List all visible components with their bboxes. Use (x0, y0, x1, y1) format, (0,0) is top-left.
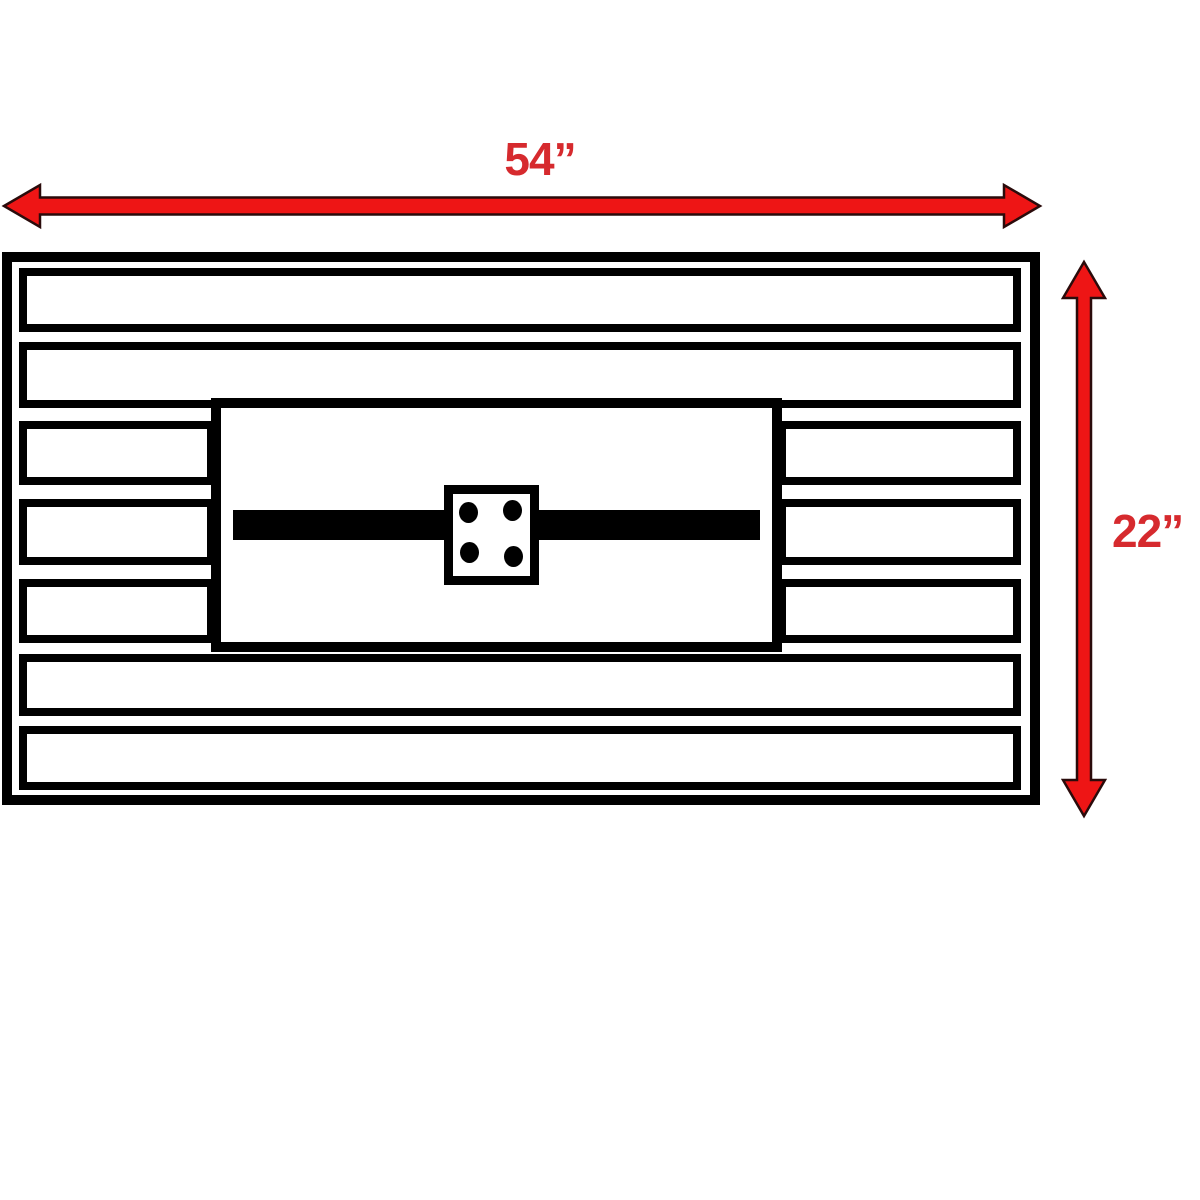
burner-hole (504, 546, 523, 567)
burner-plate (444, 485, 539, 585)
slat-row-4-right (778, 499, 1021, 565)
slat-row-4-left (19, 499, 215, 565)
width-dimension-arrow-icon (0, 182, 1044, 230)
slat-row-3-left (19, 421, 215, 485)
dimension-diagram: 54” 22” (0, 0, 1200, 1200)
slat-row-1 (19, 268, 1021, 332)
burner-hole (459, 502, 478, 523)
slat-row-6 (19, 654, 1021, 716)
width-dimension-label: 54” (0, 136, 1080, 182)
slat-row-5-right (778, 579, 1021, 643)
slat-row-5-left (19, 579, 215, 643)
slat-row-7 (19, 726, 1021, 790)
height-dimension-label: 22” (1112, 508, 1183, 554)
height-dimension-arrow-icon (1061, 258, 1107, 820)
burner-hole (460, 542, 479, 563)
slat-row-3-right (778, 421, 1021, 485)
burner-hole (503, 500, 522, 521)
